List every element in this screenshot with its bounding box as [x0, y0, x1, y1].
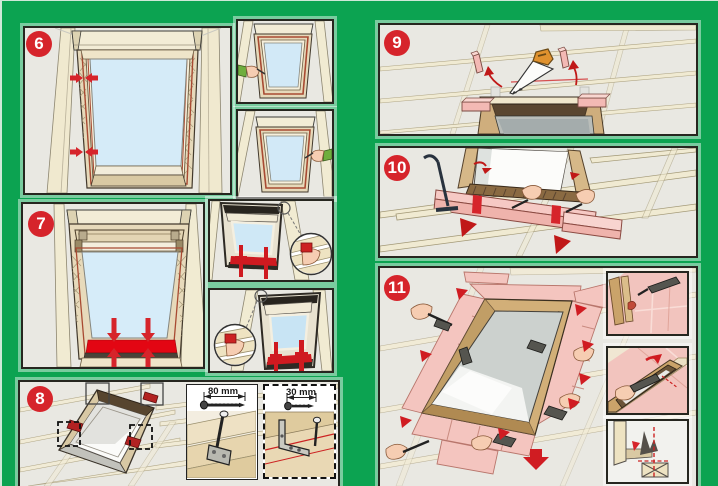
svg-text:80 mm: 80 mm [208, 386, 238, 397]
